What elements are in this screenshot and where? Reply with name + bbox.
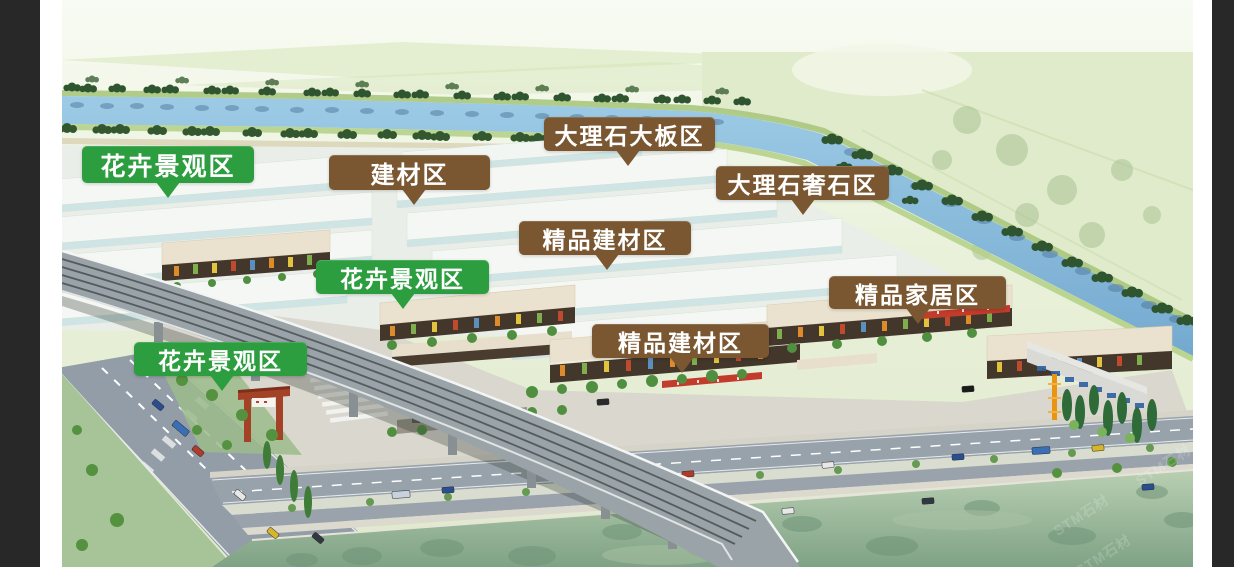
zone-label-marble-luxury-stone: 大理石奢石区: [716, 166, 889, 200]
aerial-rendering-image: STM石材 STM石材 STM石材 花卉景观区 建材区 大理石大板区 大理石奢石…: [62, 0, 1193, 567]
zone-label-flower-landscape-3: 花卉景观区: [134, 342, 307, 376]
zone-label-flower-landscape-1: 花卉景观区: [82, 146, 254, 183]
zone-label-boutique-materials-2: 精品建材区: [592, 324, 769, 358]
photo-viewer-background: STM石材 STM石材 STM石材 花卉景观区 建材区 大理石大板区 大理石奢石…: [0, 0, 1234, 567]
image-matte: STM石材 STM石材 STM石材 花卉景观区 建材区 大理石大板区 大理石奢石…: [40, 0, 1212, 567]
zone-label-flower-landscape-2: 花卉景观区: [316, 260, 489, 294]
zone-label-marble-slab: 大理石大板区: [544, 117, 715, 151]
zone-label-boutique-home: 精品家居区: [829, 276, 1006, 309]
zone-label-boutique-materials-1: 精品建材区: [519, 221, 691, 255]
scene-illustration: [62, 0, 1193, 567]
zone-label-building-materials: 建材区: [329, 155, 490, 190]
